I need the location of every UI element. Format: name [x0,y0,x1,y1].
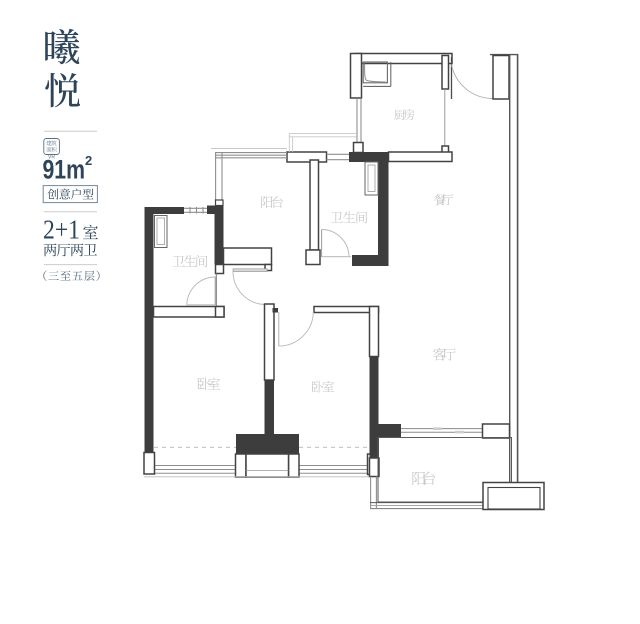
svg-text:2: 2 [85,153,92,168]
svg-text:2+1: 2+1 [43,215,80,245]
svg-text:91m: 91m [43,155,86,185]
